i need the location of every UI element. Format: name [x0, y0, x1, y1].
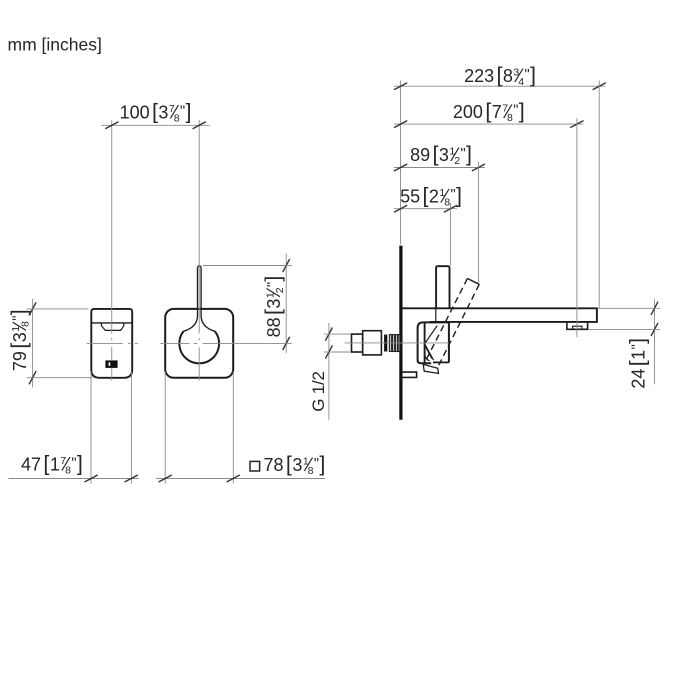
svg-text:223[83⁄4"]: 223[83⁄4"]: [464, 63, 536, 88]
svg-text:55[21⁄8"]: 55[21⁄8"]: [400, 183, 462, 208]
svg-text:100[37⁄8"]: 100[37⁄8"]: [120, 100, 192, 125]
svg-text:47[17⁄8"]: 47[17⁄8"]: [21, 452, 83, 477]
svg-text:88[31⁄2"]: 88[31⁄2"]: [261, 276, 286, 338]
svg-text:G 1/2: G 1/2: [309, 371, 328, 412]
svg-text:78[31⁄8"]: 78[31⁄8"]: [264, 452, 326, 477]
svg-text:79[31⁄8"]: 79[31⁄8"]: [7, 309, 32, 371]
svg-text:mm [inches]: mm [inches]: [8, 35, 102, 55]
svg-text:24[1"]: 24[1"]: [626, 338, 650, 389]
svg-text:89[31⁄2"]: 89[31⁄2"]: [410, 142, 472, 167]
svg-text:200[77⁄8"]: 200[77⁄8"]: [453, 99, 525, 124]
